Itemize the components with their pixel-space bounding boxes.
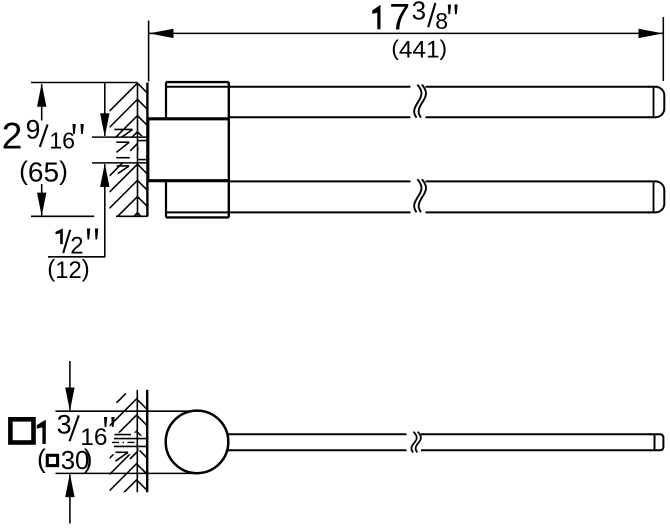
svg-text:(: (	[19, 155, 28, 185]
svg-text:9: 9	[26, 114, 41, 144]
svg-text:): )	[440, 35, 448, 60]
svg-text:2: 2	[2, 115, 23, 157]
svg-text:3: 3	[57, 409, 72, 439]
svg-text:7: 7	[389, 0, 410, 37]
svg-text:441: 441	[399, 36, 440, 63]
svg-text:12: 12	[55, 257, 81, 284]
svg-text:65: 65	[28, 157, 59, 188]
svg-text:(: (	[47, 255, 55, 282]
svg-text:): )	[59, 155, 68, 185]
svg-text:(: (	[37, 444, 46, 474]
svg-text:): )	[84, 444, 93, 474]
svg-text:16: 16	[49, 128, 75, 154]
svg-text:8: 8	[435, 8, 448, 34]
svg-text:): )	[82, 255, 90, 282]
svg-text:3: 3	[412, 0, 426, 25]
